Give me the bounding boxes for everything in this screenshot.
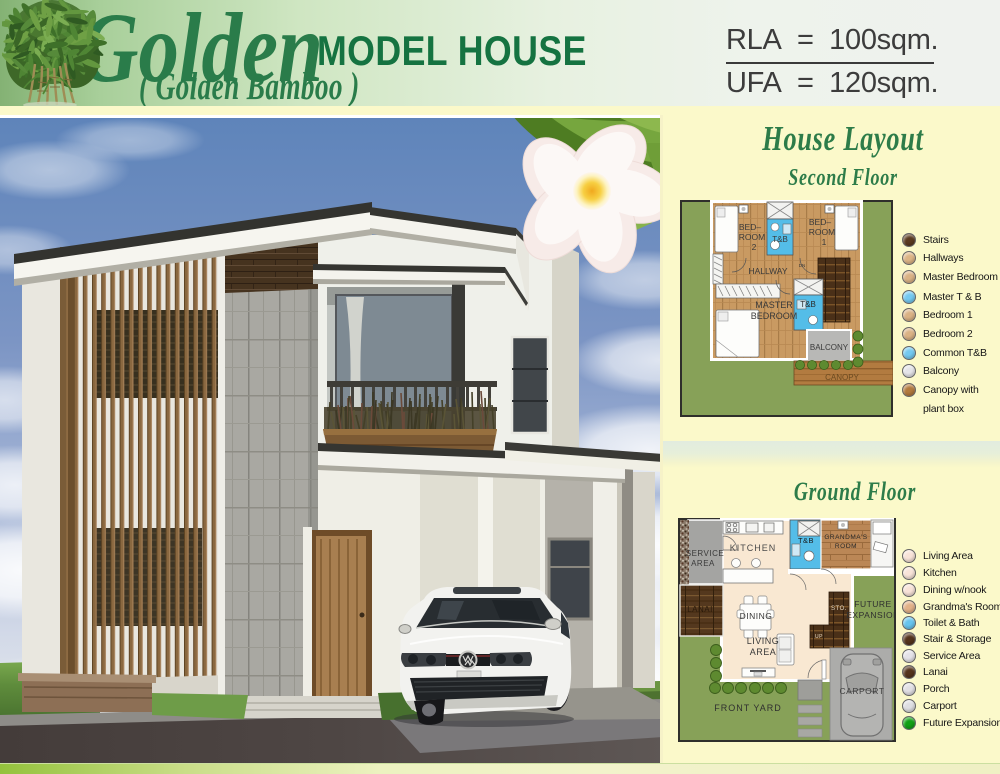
- svg-text:2: 2: [752, 242, 757, 252]
- svg-text:1: 1: [822, 237, 827, 247]
- svg-text:EXPANSION: EXPANSION: [846, 610, 896, 620]
- svg-text:T&B: T&B: [798, 536, 814, 545]
- svg-text:GRANDMA'S: GRANDMA'S: [824, 534, 867, 541]
- svg-text:ROOM: ROOM: [835, 543, 857, 550]
- svg-text:HALLWAY: HALLWAY: [748, 266, 787, 276]
- svg-text:BALCONY: BALCONY: [810, 343, 849, 352]
- svg-text:T&B: T&B: [800, 300, 816, 309]
- svg-text:AREA: AREA: [750, 647, 777, 657]
- svg-text:DINING: DINING: [740, 611, 773, 621]
- svg-text:BED–: BED–: [739, 222, 761, 232]
- svg-text:STO.: STO.: [831, 606, 847, 612]
- svg-text:SERVICE: SERVICE: [686, 549, 724, 558]
- svg-text:FUTURE: FUTURE: [854, 599, 891, 609]
- svg-text:ROOM: ROOM: [809, 227, 835, 237]
- svg-text:AREA: AREA: [691, 559, 715, 568]
- svg-text:BED–: BED–: [809, 217, 831, 227]
- svg-text:UP: UP: [815, 634, 823, 640]
- svg-text:CARPORT: CARPORT: [840, 686, 885, 696]
- svg-text:KITCHEN: KITCHEN: [730, 543, 777, 553]
- svg-text:LANAI: LANAI: [687, 605, 713, 614]
- svg-text:ROOM: ROOM: [739, 232, 765, 242]
- svg-text:FRONT YARD: FRONT YARD: [714, 703, 782, 713]
- svg-text:T&B: T&B: [772, 235, 788, 244]
- svg-text:CANOPY: CANOPY: [825, 373, 859, 382]
- svg-text:LIVING: LIVING: [747, 636, 780, 646]
- svg-text:MASTER: MASTER: [755, 300, 793, 310]
- svg-text:BEDROOM: BEDROOM: [751, 311, 798, 321]
- svg-text:DN: DN: [799, 263, 806, 268]
